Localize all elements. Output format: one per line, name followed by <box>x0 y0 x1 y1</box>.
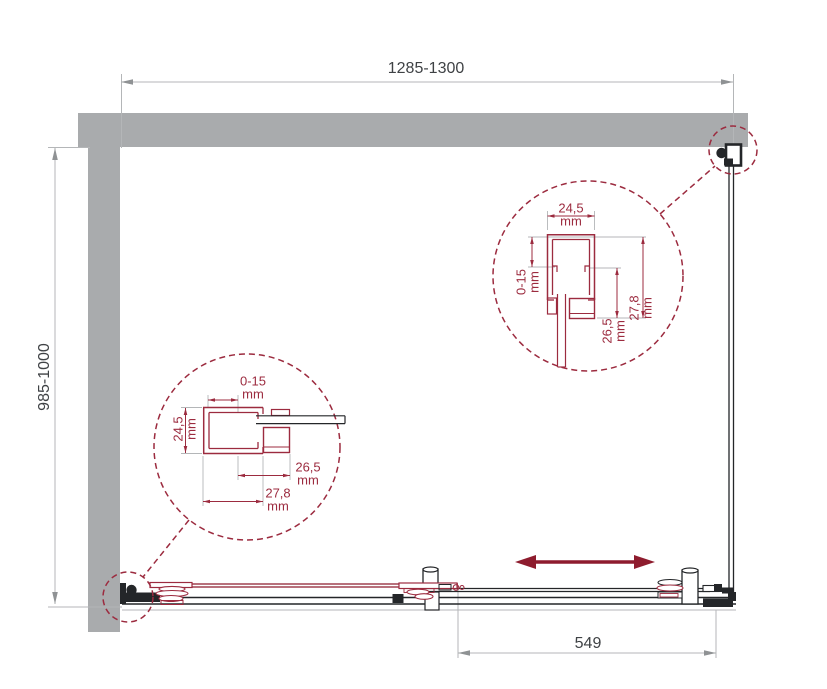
detail-right-dim-top-unit: mm <box>558 215 583 228</box>
side-glass-panel <box>729 166 734 599</box>
detail-right-dim-right-unit: mm <box>641 295 654 320</box>
detail-right-profile <box>548 234 595 367</box>
detail-left-dim-left: 24,5 mm <box>173 416 198 441</box>
detail-left-dim-top: 0-15 mm <box>240 376 266 401</box>
dimension-width-label: 1285-1300 <box>388 60 465 78</box>
detail-left-dim-right: 26,5 mm <box>295 462 320 487</box>
detail-right-dim-right: 27,8 mm <box>629 295 654 320</box>
drawing-linework <box>0 0 827 689</box>
dimension-depth <box>48 148 122 608</box>
dimension-width <box>121 74 734 148</box>
detail-left-dim-right-unit: mm <box>295 474 320 487</box>
detail-right-dim-top: 24,5 mm <box>558 203 583 228</box>
dimension-panel-label: 549 <box>575 635 602 653</box>
detail-callout-left <box>103 354 340 622</box>
detail-right-dim-middle: 26,5 mm <box>602 318 627 343</box>
detail-left-profile <box>203 408 345 454</box>
corner-bracket-top-right <box>716 145 741 166</box>
detail-left-dim-left-unit: mm <box>185 416 198 441</box>
dimension-depth-label: 985-1000 <box>36 343 54 411</box>
corner-assembly-bottom-left <box>120 583 192 605</box>
detail-right-dim-left: 0-15 mm <box>516 269 541 295</box>
detail-right-dim-left-unit: mm <box>528 269 541 295</box>
detail-left-dim-bottom-unit: mm <box>265 500 290 513</box>
detail-left-dim-bottom: 27,8 mm <box>265 488 290 513</box>
technical-drawing-shower-enclosure-plan: 1285-1300 985-1000 549 0-15 mm 24,5 mm 2… <box>0 0 827 689</box>
slide-direction-arrow <box>515 555 655 569</box>
detail-left-dim-top-unit: mm <box>240 388 266 401</box>
detail-right-dim-middle-unit: mm <box>614 318 627 343</box>
